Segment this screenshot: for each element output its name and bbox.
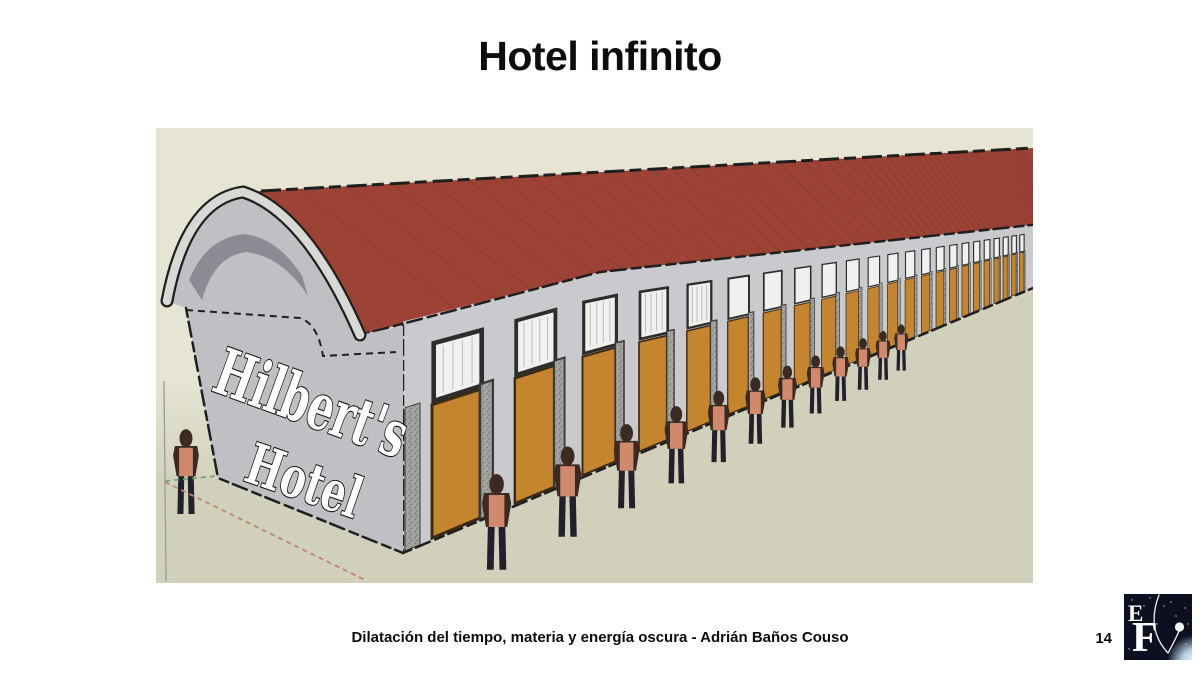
hotel-room-bay — [1020, 234, 1026, 292]
stone-frame-strip — [957, 265, 959, 319]
window — [994, 238, 999, 258]
stone-frame-strip — [990, 258, 992, 306]
window — [795, 266, 811, 303]
door — [1012, 254, 1017, 296]
star — [1163, 605, 1164, 606]
door — [515, 366, 554, 504]
stone-frame-strip — [980, 260, 982, 310]
stone-frame-strip — [969, 263, 971, 315]
hotel-room-bay — [950, 244, 959, 322]
window — [1020, 234, 1024, 252]
window — [516, 310, 555, 375]
hotel-room-bay — [936, 246, 946, 327]
star — [1128, 648, 1129, 649]
comet-dot — [1175, 622, 1184, 631]
stone-frame-strip — [999, 256, 1000, 302]
window — [640, 288, 668, 340]
stone-frame-strip — [915, 275, 918, 338]
hotel-room-bay — [962, 243, 970, 317]
window — [936, 246, 944, 271]
star — [1170, 601, 1171, 602]
door — [1020, 252, 1024, 293]
star — [1149, 597, 1150, 598]
door — [973, 263, 979, 313]
window — [906, 251, 915, 279]
window — [888, 253, 898, 282]
ef-logo-graphic: E F — [1124, 594, 1192, 660]
window — [950, 244, 957, 268]
window — [962, 243, 969, 266]
door — [432, 390, 480, 539]
window — [1003, 237, 1008, 256]
hotel-room-bay — [905, 251, 917, 341]
window — [764, 271, 782, 311]
window — [822, 262, 836, 297]
window — [728, 276, 749, 319]
star — [1143, 605, 1144, 606]
stone-frame-strip — [1016, 252, 1017, 295]
hotel-room-bay — [994, 238, 1001, 304]
hilberts-hotel-3d-render: Hilbert'sHotel — [156, 128, 1033, 583]
hotel-room-bay — [1003, 237, 1009, 300]
star — [1175, 615, 1176, 616]
window — [974, 241, 980, 263]
window — [846, 259, 859, 292]
stone-frame-strip — [930, 271, 932, 331]
hotel-room-bay — [1012, 236, 1018, 297]
door — [583, 348, 616, 475]
door — [1003, 256, 1008, 300]
stone-frame-strip — [1008, 254, 1009, 298]
ef-logo: E F — [1124, 594, 1192, 660]
door — [921, 274, 930, 334]
door — [950, 268, 957, 322]
star — [1184, 607, 1185, 608]
window — [584, 295, 617, 353]
hotel-room-bay — [921, 248, 932, 333]
page-number: 14 — [1078, 630, 1112, 647]
stone-frame-strip — [944, 268, 946, 325]
window — [922, 248, 931, 274]
star — [1187, 623, 1188, 624]
presentation-slide: Hotel infinito Hilbert'sHotel Dilatación… — [0, 0, 1200, 675]
hotel-room-bay — [984, 240, 991, 308]
door — [639, 336, 667, 452]
stone-frame-strip — [1024, 250, 1025, 291]
door — [962, 265, 969, 317]
window — [868, 256, 879, 287]
door — [728, 317, 749, 415]
logo-letter-f: F — [1132, 615, 1158, 660]
window — [984, 240, 990, 261]
window — [688, 281, 712, 328]
hotel-illustration: Hilbert'sHotel — [156, 128, 1033, 583]
footer-caption: Dilatación del tiempo, materia y energía… — [0, 629, 1200, 646]
door — [687, 325, 711, 431]
door — [994, 258, 999, 304]
door — [905, 278, 914, 341]
door — [984, 260, 990, 308]
hotel-room-bay — [973, 241, 981, 312]
door — [936, 271, 944, 328]
slide-title: Hotel infinito — [0, 33, 1200, 80]
window — [1012, 236, 1017, 255]
